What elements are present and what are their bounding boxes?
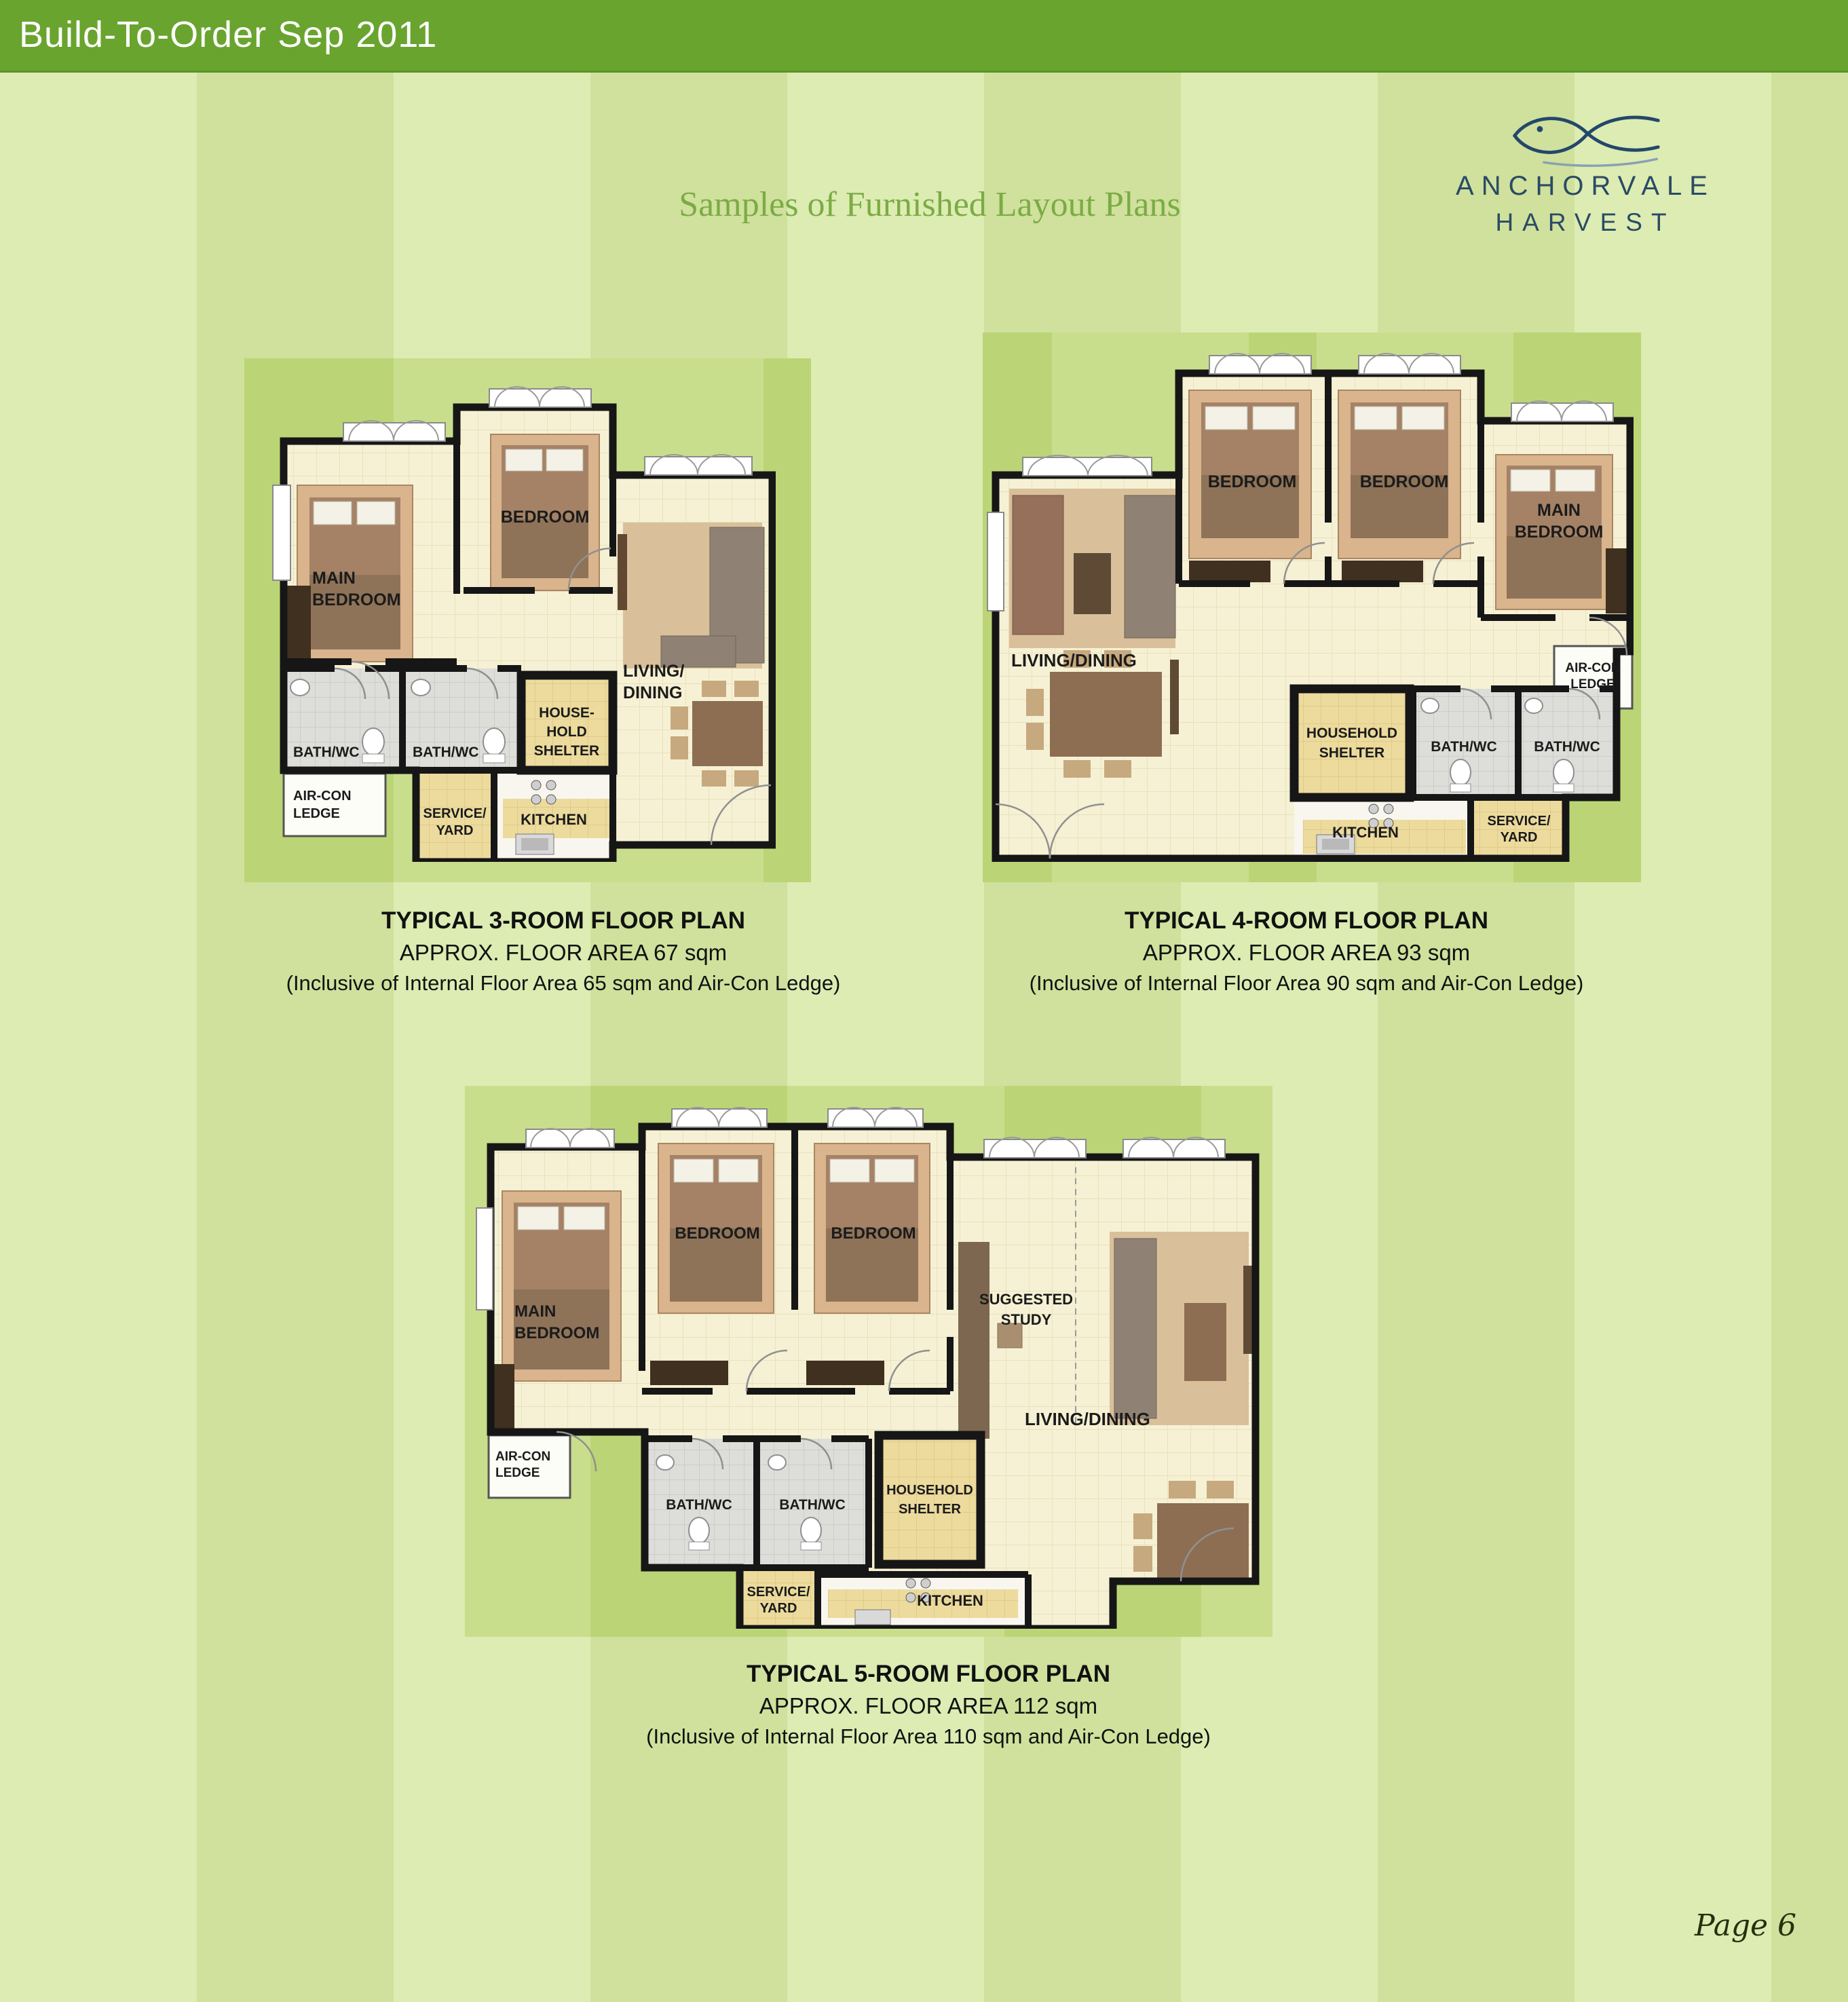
room-label-aircon-ledge: AIR-CON	[495, 1450, 550, 1464]
logo-name-line1: ANCHORVALE	[1456, 171, 1715, 202]
page-number: Page 6	[1695, 1908, 1796, 1943]
logo-name-line2: HARVEST	[1456, 208, 1715, 237]
room-label-bath: BATH/WC	[413, 744, 479, 760]
room-label-suggested-study: SUGGESTED	[979, 1291, 1073, 1308]
room-label-living-dining: LIVING/DINING	[1011, 650, 1137, 671]
room-label-household-shelter: HOLD	[546, 724, 587, 740]
caption-area: APPROX. FLOOR AREA 93 sqm	[1030, 937, 1584, 968]
room-label-suggested-study: STUDY	[1001, 1311, 1052, 1328]
room-label-household-shelter: HOUSEHOLD	[1306, 725, 1397, 741]
header-bar: Build-To-Order Sep 2011	[0, 0, 1848, 73]
room-label-bath: BATH/WC	[666, 1497, 732, 1513]
room-label-service-yard: SERVICE/	[423, 806, 487, 821]
floor-plan-3-room: MAIN BEDROOM BEDROOM LIVING/ DINING BATH…	[270, 383, 776, 862]
caption-note: (Inclusive of Internal Floor Area 110 sq…	[646, 1722, 1211, 1751]
caption-note: (Inclusive of Internal Floor Area 90 sqm…	[1030, 968, 1584, 998]
room-label-bedroom: BEDROOM	[1360, 472, 1449, 491]
room-label-aircon-ledge: LEDGE	[495, 1466, 540, 1480]
fish-logo-icon	[1506, 102, 1665, 170]
caption-title: TYPICAL 5-ROOM FLOOR PLAN	[646, 1657, 1211, 1691]
room-label-main-bedroom: MAIN	[1537, 501, 1581, 520]
room-label-service-yard: SERVICE/	[747, 1585, 810, 1600]
room-label-main-bedroom: BEDROOM	[312, 590, 401, 609]
room-label-kitchen: KITCHEN	[917, 1592, 983, 1609]
caption-note: (Inclusive of Internal Floor Area 65 sqm…	[286, 968, 841, 998]
page-title: Samples of Furnished Layout Plans	[679, 185, 1181, 225]
room-label-household-shelter: SHELTER	[1319, 745, 1384, 761]
room-label-bath: BATH/WC	[779, 1497, 846, 1513]
caption-area: APPROX. FLOOR AREA 67 sqm	[286, 937, 841, 968]
room-label-aircon-ledge: LEDGE	[1570, 677, 1615, 692]
room-label-bedroom: BEDROOM	[1208, 472, 1297, 491]
room-label-kitchen: KITCHEN	[521, 811, 587, 828]
room-label-bedroom: BEDROOM	[831, 1224, 916, 1243]
room-label-main-bedroom: BEDROOM	[1515, 523, 1604, 542]
header-title: Build-To-Order Sep 2011	[19, 14, 437, 56]
room-label-living-dining: LIVING/	[623, 662, 684, 681]
room-label-bedroom: BEDROOM	[675, 1224, 759, 1243]
caption-title: TYPICAL 4-ROOM FLOOR PLAN	[1030, 904, 1584, 937]
room-label-bedroom: BEDROOM	[501, 508, 590, 527]
room-label-aircon-ledge: AIR-CON	[293, 789, 352, 804]
room-label-bath: BATH/WC	[1431, 739, 1497, 755]
room-label-aircon-ledge: AIR-CON	[1565, 661, 1620, 675]
room-label-main-bedroom: BEDROOM	[514, 1324, 599, 1342]
aircon-ledge-area	[284, 774, 385, 836]
room-label-household-shelter: SHELTER	[899, 1502, 961, 1517]
room-label-living-dining: DINING	[623, 683, 683, 702]
brochure-page: Build-To-Order Sep 2011 Samples of Furni…	[0, 0, 1848, 2002]
room-label-living-dining: LIVING/DINING	[1025, 1409, 1150, 1429]
room-label-service-yard: SERVICE/	[1488, 814, 1551, 829]
logo: ANCHORVALE HARVEST	[1456, 102, 1715, 237]
caption-title: TYPICAL 3-ROOM FLOOR PLAN	[286, 904, 841, 937]
floor-plan-5-room: MAIN BEDROOM BEDROOM BEDROOM SUGGESTED S…	[475, 1106, 1262, 1629]
room-label-aircon-ledge: LEDGE	[293, 806, 340, 821]
room-label-household-shelter: HOUSE-	[539, 705, 595, 721]
room-label-household-shelter: HOUSEHOLD	[886, 1483, 973, 1498]
caption-3-room: TYPICAL 3-ROOM FLOOR PLAN APPROX. FLOOR …	[286, 904, 841, 998]
room-label-service-yard: YARD	[760, 1601, 797, 1616]
room-label-household-shelter: SHELTER	[534, 743, 599, 759]
room-label-service-yard: YARD	[436, 823, 474, 838]
room-label-main-bedroom: MAIN	[312, 569, 356, 588]
caption-5-room: TYPICAL 5-ROOM FLOOR PLAN APPROX. FLOOR …	[646, 1657, 1211, 1752]
caption-area: APPROX. FLOOR AREA 112 sqm	[646, 1691, 1211, 1722]
room-label-bath: BATH/WC	[293, 744, 360, 760]
room-label-service-yard: YARD	[1501, 830, 1538, 845]
floor-plan-4-room: BEDROOM BEDROOM MAIN BEDROOM LIVING/DINI…	[985, 353, 1634, 862]
room-label-kitchen: KITCHEN	[1332, 824, 1399, 841]
room-label-main-bedroom: MAIN	[514, 1302, 556, 1321]
room-label-bath: BATH/WC	[1534, 739, 1600, 755]
caption-4-room: TYPICAL 4-ROOM FLOOR PLAN APPROX. FLOOR …	[1030, 904, 1584, 998]
